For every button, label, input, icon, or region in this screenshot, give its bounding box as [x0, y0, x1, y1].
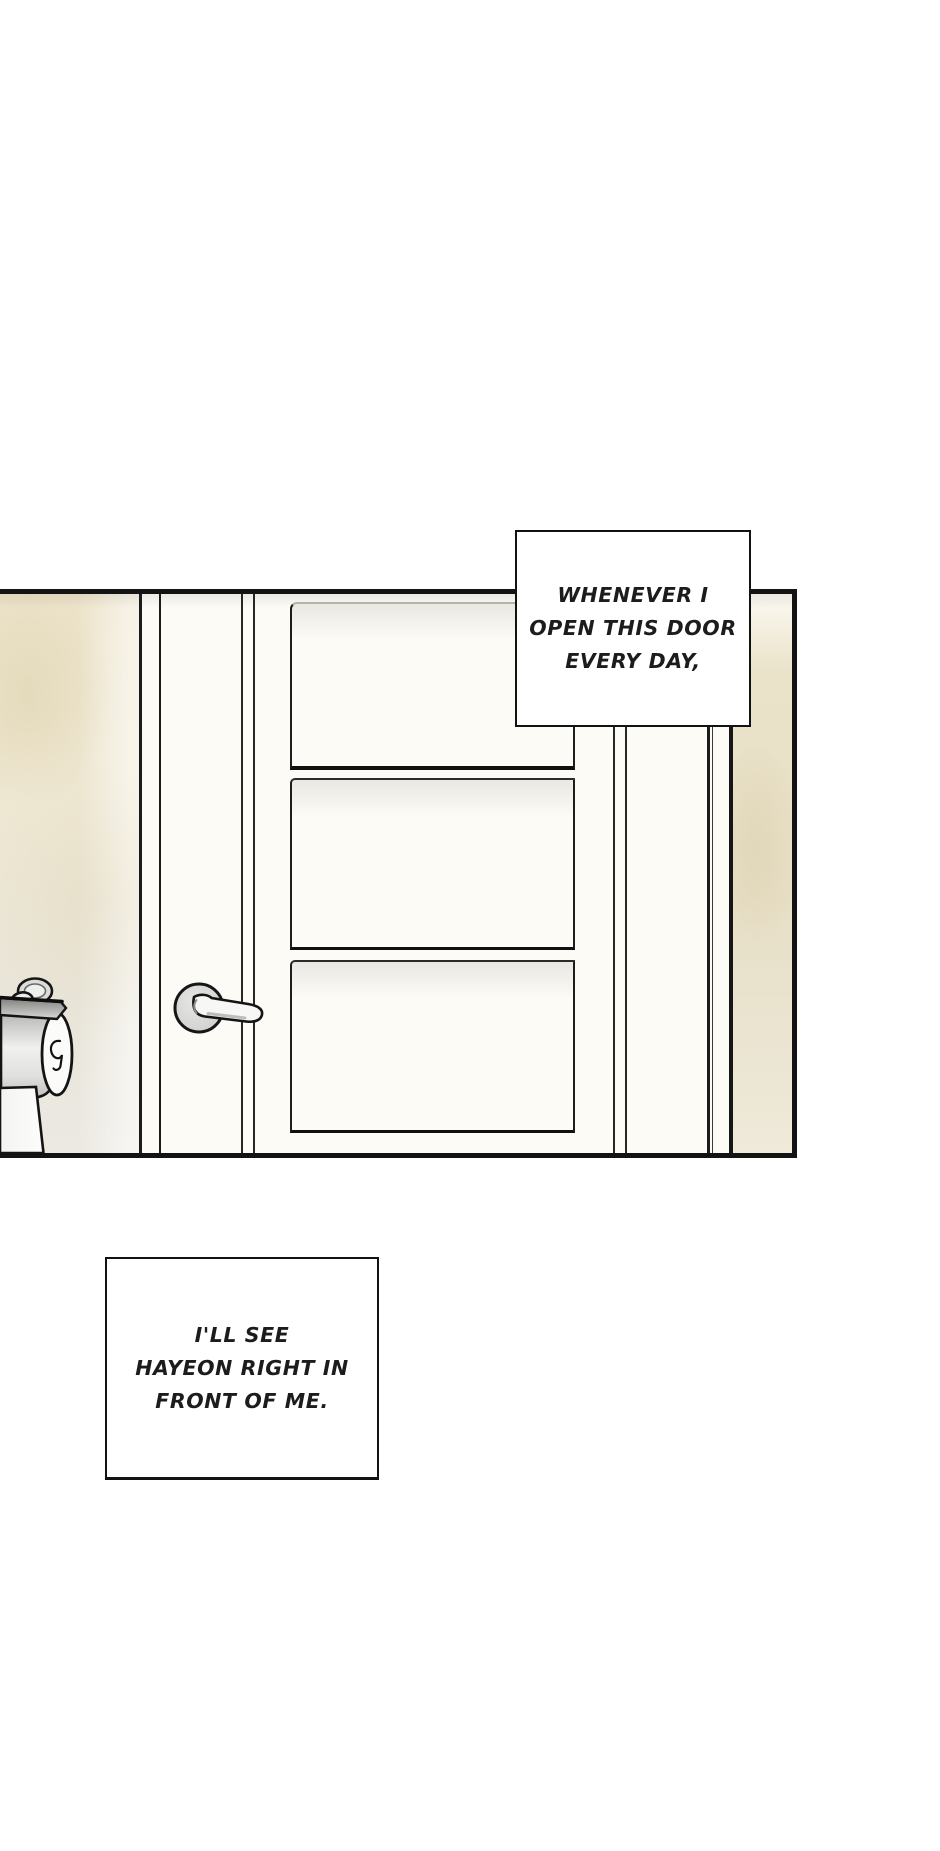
- narration-box-top: WHENEVER I OPEN THIS DOOR EVERY DAY,: [515, 530, 751, 727]
- manga-page: WHENEVER I OPEN THIS DOOR EVERY DAY, I'L…: [0, 0, 940, 1851]
- narration-box-bottom: I'LL SEE HAYEON RIGHT IN FRONT OF ME.: [105, 1257, 379, 1480]
- door-handle: [175, 984, 262, 1032]
- paper-roll-end-cap: [42, 1013, 72, 1095]
- narration-line: FRONT OF ME.: [155, 1385, 328, 1418]
- holder-lower-bracket: [0, 1087, 44, 1153]
- narration-line: WHENEVER I: [557, 579, 708, 612]
- narration-line: OPEN THIS DOOR: [529, 612, 736, 645]
- narration-line: EVERY DAY,: [565, 645, 701, 678]
- narration-line: HAYEON RIGHT IN: [135, 1352, 349, 1385]
- narration-line: I'LL SEE: [195, 1319, 290, 1352]
- toilet-paper-holder: [0, 979, 72, 1154]
